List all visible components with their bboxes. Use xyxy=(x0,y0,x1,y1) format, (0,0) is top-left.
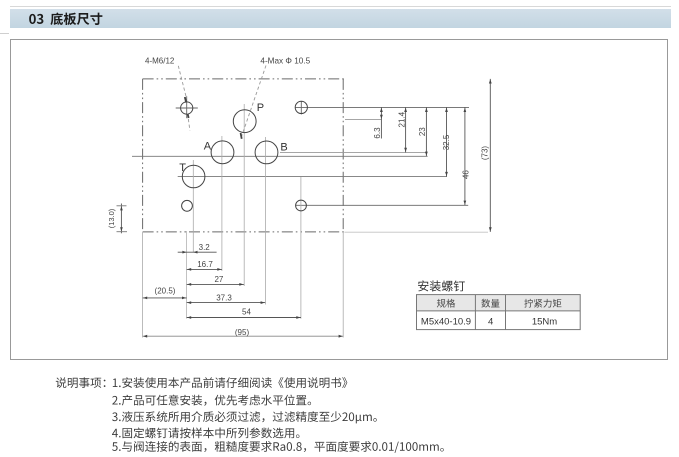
svg-text:4-M6/12: 4-M6/12 xyxy=(145,57,175,66)
svg-text:27: 27 xyxy=(214,275,223,284)
svg-text:16.7: 16.7 xyxy=(197,260,213,269)
svg-text:32.5: 32.5 xyxy=(442,134,451,150)
svg-text:21.4: 21.4 xyxy=(397,111,406,127)
svg-text:(95): (95) xyxy=(235,328,250,337)
svg-text:(13.0): (13.0) xyxy=(107,208,116,228)
svg-text:6.3: 6.3 xyxy=(373,127,382,139)
svg-text:(20.5): (20.5) xyxy=(155,287,176,296)
svg-text:15Nm: 15Nm xyxy=(532,316,557,327)
svg-text:B: B xyxy=(280,142,287,154)
svg-text:M5x40-10.9: M5x40-10.9 xyxy=(421,316,471,327)
svg-text:4: 4 xyxy=(488,316,493,327)
svg-text:37.3: 37.3 xyxy=(216,293,232,302)
svg-text:4-Max Φ 10.5: 4-Max Φ 10.5 xyxy=(260,57,310,66)
svg-text:A: A xyxy=(204,140,212,152)
svg-text:23: 23 xyxy=(418,127,427,136)
svg-text:3.2: 3.2 xyxy=(199,243,211,252)
svg-text:P: P xyxy=(257,102,264,114)
svg-text:54: 54 xyxy=(242,308,251,317)
svg-text:T: T xyxy=(179,162,186,174)
svg-text:46: 46 xyxy=(461,170,470,179)
svg-text:(73): (73) xyxy=(481,146,490,161)
